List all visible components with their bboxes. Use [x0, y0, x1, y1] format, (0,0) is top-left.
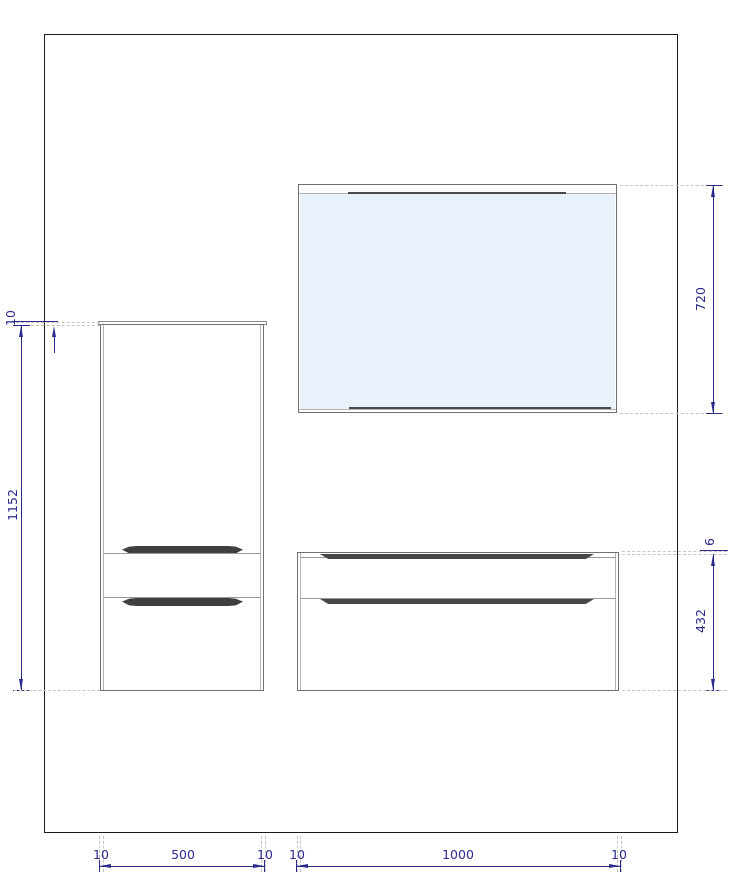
dimension-tick: [706, 185, 722, 186]
dim-label-top-offset: 10: [4, 303, 18, 333]
dimension-arrow: [100, 864, 111, 868]
dim-label-unit-width: 1000: [436, 848, 480, 862]
dimension-line: [21, 325, 22, 690]
dim-label-cabinet-height: 1152: [6, 475, 20, 535]
dimension-line: [54, 337, 55, 353]
dimension-arrow: [52, 326, 56, 337]
mirror-glass: [300, 194, 615, 409]
dimension-arrow: [297, 864, 308, 868]
dim-label-unit-height: 432: [694, 591, 708, 651]
tall-cabinet-divider-line: [103, 553, 261, 554]
dim-label-gap: 6: [703, 532, 717, 552]
mirror-top-shadow-line: [348, 192, 566, 194]
dimension-line: [713, 554, 714, 690]
tall-cabinet-drawer-handle: [122, 598, 243, 606]
dimension-line: [713, 185, 714, 413]
dim-label-unit-right-offset: 10: [609, 848, 629, 862]
dimension-tick: [706, 413, 722, 414]
extension-line: [16, 322, 100, 323]
mirror-bottom-trim-line: [299, 409, 616, 410]
dimension-arrow: [253, 864, 264, 868]
dimension-arrow: [711, 186, 715, 197]
mirror-cabinet[interactable]: [298, 184, 617, 413]
extension-line: [622, 690, 727, 691]
dimension-arrow: [19, 326, 23, 337]
base-unit-divider-line: [300, 598, 616, 599]
dimension-arrow: [609, 864, 620, 868]
dim-label-cab-width: 500: [163, 848, 203, 862]
dimension-arrow: [711, 402, 715, 413]
dim-label-unit-left-offset: 10: [287, 848, 307, 862]
dim-label-mirror-height: 720: [694, 269, 708, 329]
dimension-arrow: [19, 679, 23, 690]
dimension-arrow: [711, 679, 715, 690]
tall-cabinet[interactable]: [100, 324, 264, 691]
base-drawer-unit[interactable]: [297, 552, 619, 691]
dimension-line: [100, 866, 264, 867]
base-unit-left-panel-line: [300, 553, 301, 690]
dim-label-cab-left-offset: 10: [91, 848, 111, 862]
tall-cabinet-right-panel-line: [260, 325, 261, 690]
dimension-tick: [13, 325, 30, 326]
dimension-tick: [12, 321, 58, 322]
extension-line: [14, 690, 100, 691]
mirror-bottom-shadow-line: [349, 407, 611, 409]
dimension-arrow: [711, 555, 715, 566]
tall-cabinet-divider-line: [103, 597, 261, 598]
base-unit-drawer-handle: [320, 599, 594, 604]
tall-cabinet-left-panel-line: [103, 325, 104, 690]
base-unit-right-panel-line: [615, 553, 616, 690]
base-unit-drawer-handle: [320, 554, 594, 559]
dim-label-cab-right-offset: 10: [255, 848, 275, 862]
drawing-canvas: 10 1152 720 6 432 10 500 10 10 1000 10: [0, 0, 729, 882]
dimension-line: [297, 866, 620, 867]
